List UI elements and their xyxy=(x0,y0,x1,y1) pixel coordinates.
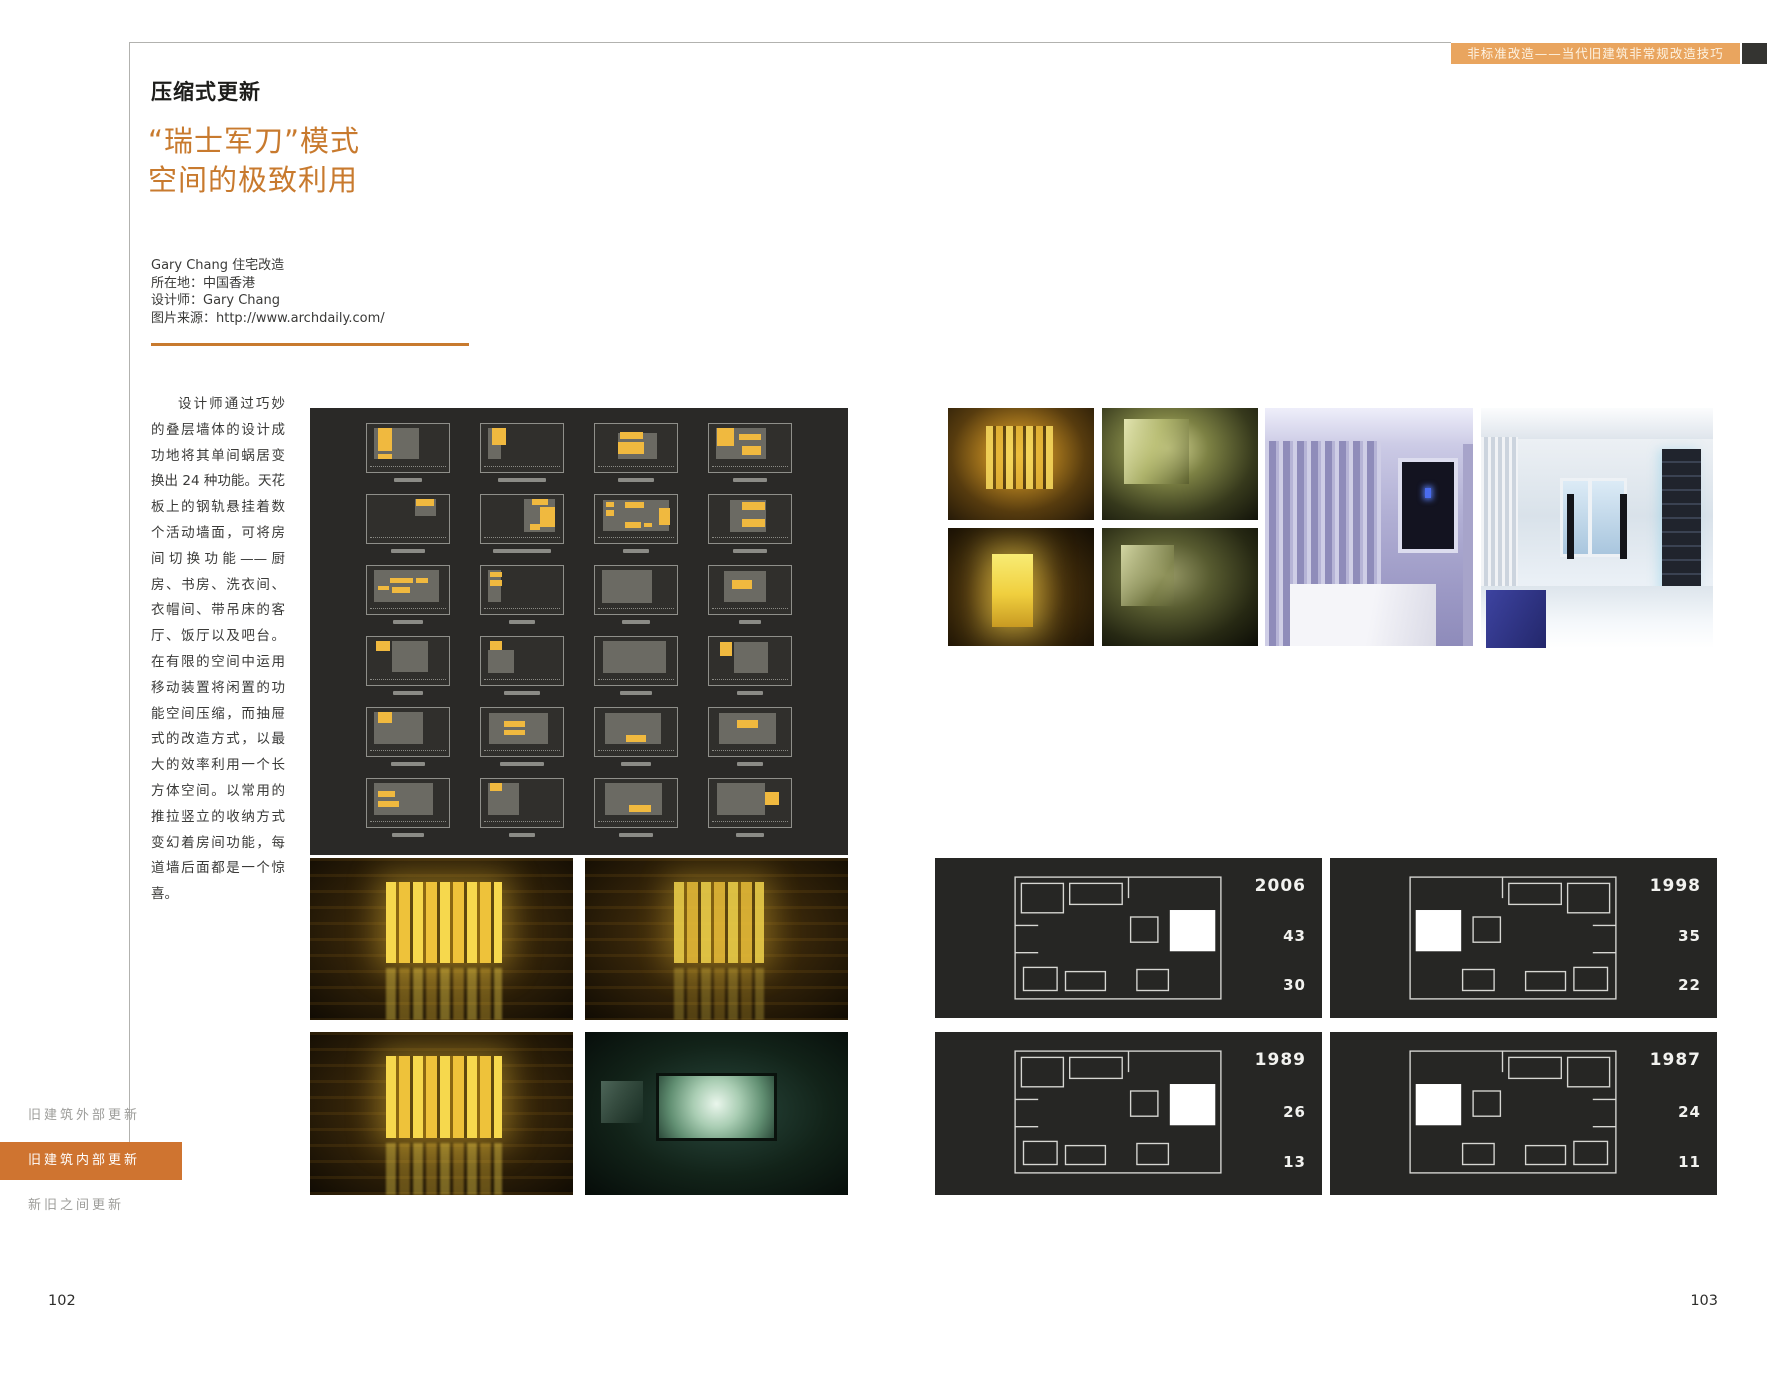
plan-caption xyxy=(620,691,652,695)
floor-plan-matrix xyxy=(310,408,848,855)
plan-value: 24 xyxy=(1678,1103,1701,1121)
floor-plan-sketch xyxy=(1013,1048,1223,1176)
mini-floor-plan xyxy=(594,565,678,627)
highlighted-zone xyxy=(606,510,613,516)
plan-caption xyxy=(392,833,424,837)
room-zone xyxy=(602,570,653,604)
renovation-plan-panel-1989: 1989 26 13 xyxy=(935,1032,1322,1195)
photo-olive-interior xyxy=(1102,408,1258,520)
plan-value: 22 xyxy=(1678,976,1701,994)
mini-floor-plan xyxy=(480,636,564,698)
photo-purple-bedroom xyxy=(1265,408,1473,646)
mini-floor-plan xyxy=(480,707,564,769)
mini-floor-plan-drawing xyxy=(366,494,450,544)
mini-floor-plan xyxy=(366,636,450,698)
highlighted-zone xyxy=(378,801,399,807)
room-zone xyxy=(717,783,765,815)
highlighted-zone xyxy=(416,499,434,506)
article-body: 设计师通过巧妙的叠层墙体的设计成功地将其单间蜗居变换出 24 种功能。天花板上的… xyxy=(151,392,285,908)
plan-year: 1989 xyxy=(1255,1050,1306,1070)
plan-value: 43 xyxy=(1283,927,1306,945)
mini-floor-plan-drawing xyxy=(366,423,450,473)
mini-floor-plan xyxy=(480,494,564,556)
highlighted-zone xyxy=(606,502,613,508)
mini-floor-plan xyxy=(708,707,792,769)
highlighted-zone xyxy=(717,428,733,446)
plan-caption xyxy=(504,691,541,695)
window-frame xyxy=(1588,478,1592,557)
highlighted-zone xyxy=(504,721,525,726)
mini-floor-plan-drawing xyxy=(708,565,792,615)
mini-floor-plan xyxy=(594,423,678,485)
plan-figures: 2006 43 30 xyxy=(1255,858,1306,1018)
mini-floor-plan-drawing xyxy=(594,494,678,544)
mini-floor-plan xyxy=(480,423,564,485)
mini-floor-plan-drawing xyxy=(708,707,792,757)
project-info: Gary Chang 住宅改造 所在地：中国香港 设计师：Gary Chang … xyxy=(151,257,385,327)
chapter-header: 非标准改造——当代旧建筑非常规改造技巧 xyxy=(1451,43,1740,64)
mini-floor-plan xyxy=(366,494,450,556)
highlighted-zone xyxy=(378,428,392,451)
plan-caption xyxy=(733,478,767,482)
plan-caption xyxy=(623,549,648,553)
mini-floor-plan xyxy=(366,778,450,840)
mini-floor-plan-drawing xyxy=(366,778,450,828)
plan-caption xyxy=(621,762,651,766)
plan-year: 2006 xyxy=(1255,876,1306,896)
plan-caption xyxy=(739,620,761,624)
plan-value: 11 xyxy=(1678,1153,1701,1171)
highlighted-zone xyxy=(492,428,506,445)
plan-caption xyxy=(509,833,534,837)
highlighted-zone xyxy=(739,434,762,441)
mini-floor-plan xyxy=(480,778,564,840)
page-number-left: 102 xyxy=(48,1293,76,1309)
highlighted-zone xyxy=(742,519,765,527)
mini-floor-plan xyxy=(594,707,678,769)
mini-floor-plan-drawing xyxy=(366,707,450,757)
article-title-line2: 空间的极致利用 xyxy=(148,163,358,197)
highlighted-zone xyxy=(392,587,410,593)
room-zone xyxy=(489,713,548,744)
highlighted-zone xyxy=(378,586,389,590)
mini-floor-plan-drawing xyxy=(594,707,678,757)
mini-floor-plan-drawing xyxy=(708,636,792,686)
plan-caption xyxy=(391,762,425,766)
highlighted-zone xyxy=(490,641,502,650)
photo-amber-interior xyxy=(948,408,1094,520)
floor-plan-sketch xyxy=(1013,874,1223,1002)
highlighted-zone xyxy=(504,730,525,735)
mini-floor-plan-drawing xyxy=(480,636,564,686)
renovation-plan-panel-1987: 1987 24 11 xyxy=(1330,1032,1717,1195)
chapter-header-block xyxy=(1742,43,1767,64)
highlighted-zone xyxy=(742,502,765,511)
room-zone xyxy=(392,641,428,672)
plan-caption xyxy=(736,833,765,837)
mini-floor-plan xyxy=(708,565,792,627)
speaker xyxy=(1620,494,1627,559)
room-zone xyxy=(603,641,665,673)
photo-olive-interior-dark xyxy=(1102,528,1258,646)
highlighted-zone xyxy=(765,792,779,804)
project-location: 所在地：中国香港 xyxy=(151,275,385,293)
sidebar-item-between-old-new: 新旧之间更新 xyxy=(28,1196,124,1216)
plan-year: 1987 xyxy=(1650,1050,1701,1070)
mini-floor-plan xyxy=(366,707,450,769)
highlighted-zone xyxy=(620,432,643,440)
plan-value: 35 xyxy=(1678,927,1701,945)
plan-caption xyxy=(509,620,534,624)
section-title: 压缩式更新 xyxy=(151,76,261,106)
mini-floor-plan-drawing xyxy=(594,423,678,473)
book-spread: 非标准改造——当代旧建筑非常规改造技巧 压缩式更新 “瑞士军刀”模式 空间的极致… xyxy=(0,0,1767,1380)
shelf-wall xyxy=(1662,449,1701,598)
highlighted-zone xyxy=(644,523,651,527)
highlighted-zone xyxy=(625,522,641,528)
floor-plan-sketch xyxy=(1408,1048,1618,1176)
highlighted-zone xyxy=(532,499,548,505)
room-zone xyxy=(374,783,433,815)
plan-caption xyxy=(733,549,767,553)
room-zone xyxy=(734,642,768,673)
ceiling xyxy=(1481,408,1713,439)
article-title-line1: “瑞士军刀”模式 xyxy=(148,124,360,158)
tv-light xyxy=(1425,488,1431,498)
left-rule xyxy=(129,42,130,1142)
blue-bench xyxy=(1486,590,1546,648)
mini-floor-plan-drawing xyxy=(708,778,792,828)
highlighted-zone xyxy=(540,507,555,526)
mini-floor-plan-drawing xyxy=(708,423,792,473)
highlighted-zone xyxy=(732,580,752,588)
mini-floor-plan xyxy=(366,565,450,627)
renovation-plan-panel-1998: 1998 35 22 xyxy=(1330,858,1717,1018)
mini-floor-plan-drawing xyxy=(480,565,564,615)
mini-floor-plan xyxy=(480,565,564,627)
title-underline xyxy=(151,343,469,346)
renovation-plan-panel-2006: 2006 43 30 xyxy=(935,858,1322,1018)
photo-amber-bath-dim xyxy=(585,858,848,1020)
photo-white-living-room xyxy=(1481,408,1713,648)
highlighted-zone xyxy=(629,805,650,812)
mini-floor-plan-drawing xyxy=(366,636,450,686)
plan-caption xyxy=(393,620,423,624)
bed xyxy=(1290,584,1436,646)
highlighted-zone xyxy=(490,572,502,577)
mini-floor-plan-drawing xyxy=(594,636,678,686)
plan-figures: 1998 35 22 xyxy=(1650,858,1701,1018)
mini-floor-plan-drawing xyxy=(480,778,564,828)
article-title: “瑞士军刀”模式 空间的极致利用 xyxy=(148,122,360,200)
photo-amber-bath-reflection xyxy=(310,1032,573,1195)
plan-figures: 1987 24 11 xyxy=(1650,1032,1701,1195)
mini-floor-plan-drawing xyxy=(594,778,678,828)
chapter-header-label: 非标准改造——当代旧建筑非常规改造技巧 xyxy=(1467,46,1724,61)
room-zone xyxy=(488,650,514,672)
plan-caption xyxy=(500,762,544,766)
mini-floor-plan xyxy=(594,778,678,840)
highlighted-zone xyxy=(720,642,732,656)
plan-value: 13 xyxy=(1283,1153,1306,1171)
plan-caption xyxy=(493,549,552,553)
floor-plan-sketch xyxy=(1408,874,1618,1002)
mini-floor-plan-drawing xyxy=(366,565,450,615)
mini-floor-plan xyxy=(594,636,678,698)
mini-floor-plan-drawing xyxy=(708,494,792,544)
sidebar-item-exterior-renewal: 旧建筑外部更新 xyxy=(28,1106,140,1126)
photo-amber-lit-doorway xyxy=(948,528,1094,646)
plan-caption xyxy=(393,691,423,695)
mini-floor-plan-drawing xyxy=(480,423,564,473)
plan-caption xyxy=(622,620,651,624)
plan-caption xyxy=(618,478,655,482)
highlighted-zone xyxy=(390,578,413,583)
highlighted-zone xyxy=(659,508,670,524)
plan-value: 30 xyxy=(1283,976,1306,994)
highlighted-zone xyxy=(378,454,392,459)
highlighted-zone xyxy=(626,735,646,742)
mini-floor-plan xyxy=(708,636,792,698)
highlighted-zone xyxy=(378,712,392,724)
highlighted-zone xyxy=(742,446,762,455)
mini-floor-plan-drawing xyxy=(594,565,678,615)
mini-floor-plan xyxy=(708,494,792,556)
highlighted-zone xyxy=(416,578,428,583)
photo-tv-screening-room xyxy=(585,1032,848,1195)
plan-caption xyxy=(394,478,423,482)
plan-caption xyxy=(498,478,547,482)
plan-caption xyxy=(737,762,762,766)
highlighted-zone xyxy=(490,783,502,791)
mini-floor-plan xyxy=(366,423,450,485)
project-name: Gary Chang 住宅改造 xyxy=(151,257,385,275)
sidebar-item-interior-renewal: 旧建筑内部更新 xyxy=(0,1142,182,1180)
mini-floor-plan xyxy=(708,423,792,485)
mini-floor-plan-drawing xyxy=(480,707,564,757)
highlighted-zone xyxy=(618,442,644,454)
highlighted-zone xyxy=(625,502,645,509)
ceiling xyxy=(1265,408,1473,444)
plan-caption xyxy=(391,549,425,553)
highlighted-zone xyxy=(378,791,395,797)
photo-amber-bath-panels xyxy=(310,858,573,1020)
mini-floor-plan xyxy=(708,778,792,840)
mini-floor-plan xyxy=(594,494,678,556)
highlighted-zone xyxy=(376,641,390,652)
project-designer: 设计师：Gary Chang xyxy=(151,292,385,310)
plan-caption xyxy=(737,691,764,695)
side-wall xyxy=(1463,444,1473,646)
plan-figures: 1989 26 13 xyxy=(1255,1032,1306,1195)
speaker xyxy=(1567,494,1574,559)
highlighted-zone xyxy=(490,580,502,585)
highlighted-zone xyxy=(737,720,758,729)
plan-value: 26 xyxy=(1283,1103,1306,1121)
page-number-right: 103 xyxy=(1662,1293,1718,1309)
mini-floor-plan-drawing xyxy=(480,494,564,544)
plan-caption xyxy=(619,833,653,837)
project-image-source: 图片来源：http://www.archdaily.com/ xyxy=(151,310,385,328)
plan-year: 1998 xyxy=(1650,876,1701,896)
tv-nook xyxy=(1398,458,1458,553)
room-zone xyxy=(719,713,776,744)
highlighted-zone xyxy=(530,524,540,530)
top-rule xyxy=(129,42,1451,43)
